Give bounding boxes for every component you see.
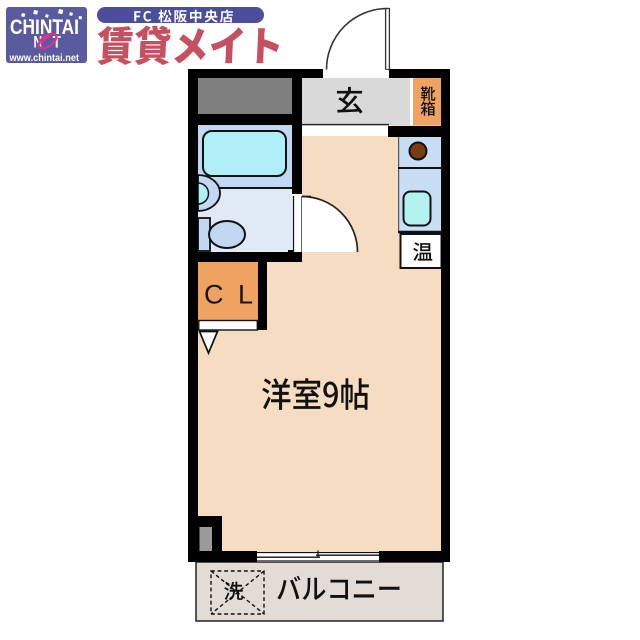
svg-text:www.chintai.net: www.chintai.net: [9, 53, 80, 63]
svg-text:C L: C L: [204, 280, 257, 310]
